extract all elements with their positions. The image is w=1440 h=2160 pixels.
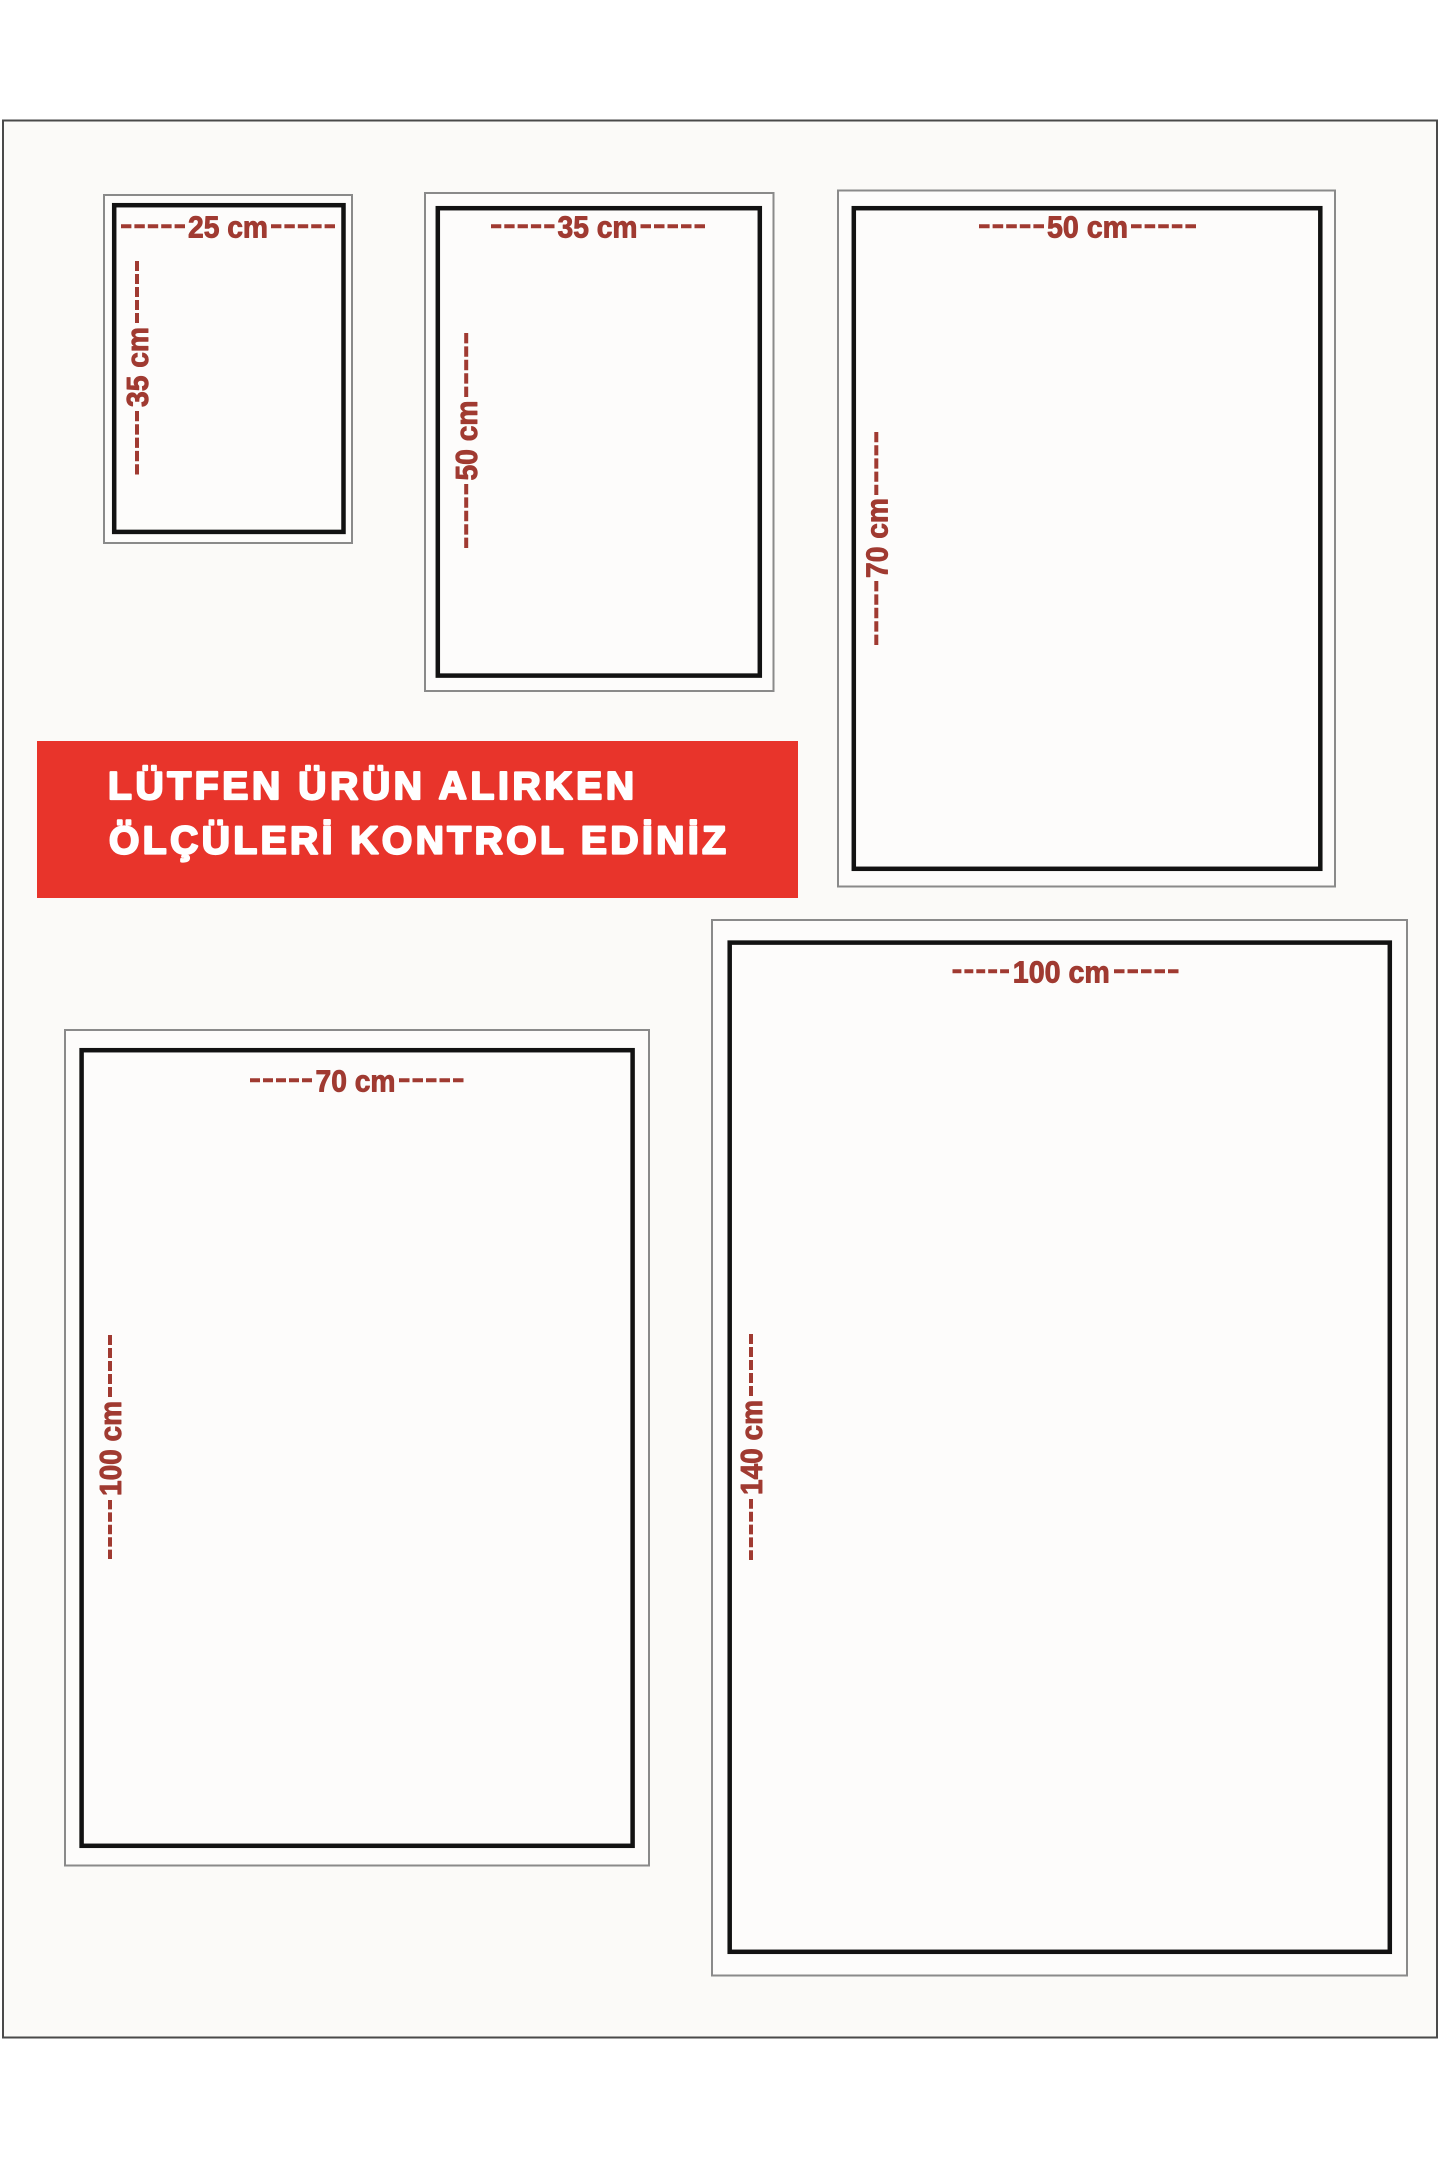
svg-text:70 cm: 70 cm [860,498,894,578]
svg-text:140 cm: 140 cm [735,1400,769,1495]
svg-text:100 cm: 100 cm [1013,956,1110,990]
svg-text:25 cm: 25 cm [188,211,268,245]
svg-text:ÖLÇÜLERİ KONTROL EDİNİZ: ÖLÇÜLERİ KONTROL EDİNİZ [109,820,726,863]
svg-text:70 cm: 70 cm [316,1065,396,1099]
svg-text:35 cm: 35 cm [558,211,638,245]
svg-text:100 cm: 100 cm [94,1401,128,1496]
svg-text:50 cm: 50 cm [450,401,484,481]
svg-text:35 cm: 35 cm [121,327,155,407]
svg-text:50 cm: 50 cm [1047,211,1128,245]
svg-text:LÜTFEN ÜRÜN ALIRKEN: LÜTFEN ÜRÜN ALIRKEN [108,765,634,808]
